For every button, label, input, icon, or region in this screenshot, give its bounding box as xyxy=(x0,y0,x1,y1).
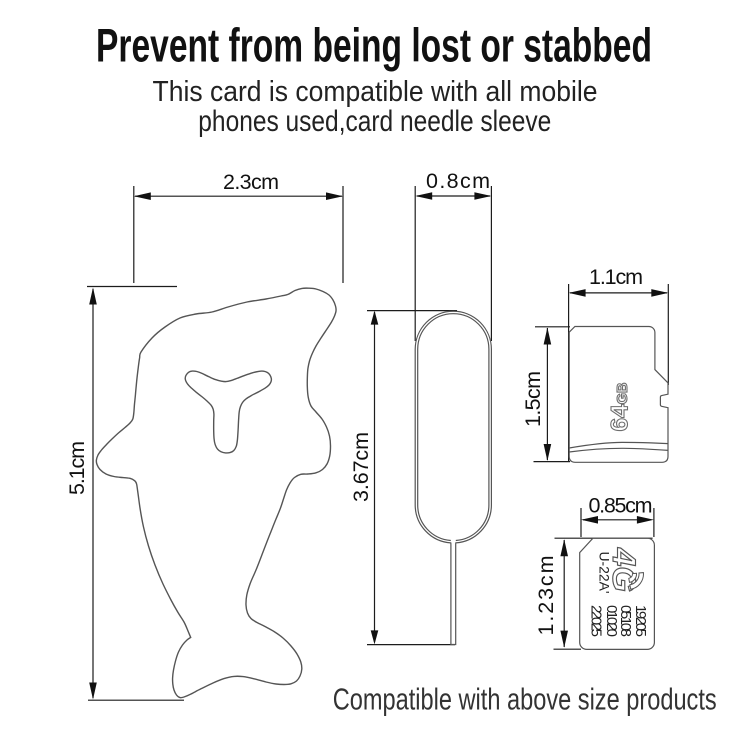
svg-text:0.85cm: 0.85cm xyxy=(589,494,653,518)
svg-text:Compatible with above size pro: Compatible with above size products xyxy=(333,681,717,716)
svg-text:1.5cm: 1.5cm xyxy=(521,371,545,427)
svg-text:22025: 22025 xyxy=(587,605,604,637)
svg-text:5.1cm: 5.1cm xyxy=(65,441,89,495)
svg-text:2.3cm: 2.3cm xyxy=(223,170,279,194)
svg-text:0.8cm: 0.8cm xyxy=(426,169,490,193)
svg-text:U-22A': U-22A' xyxy=(597,552,613,594)
svg-text:Prevent from being lost or sta: Prevent from being lost or stabbed xyxy=(96,19,652,72)
svg-text:01020: 01020 xyxy=(603,605,620,637)
svg-text:phones used,card needle sleeve: phones used,card needle sleeve xyxy=(198,105,551,138)
svg-text:This card is compatible with a: This card is compatible with all mobile xyxy=(153,76,598,108)
svg-text:1.1cm: 1.1cm xyxy=(589,265,643,289)
svg-text:1.23cm: 1.23cm xyxy=(534,556,558,636)
svg-text:64GB: 64GB xyxy=(607,382,634,431)
svg-text:3.67cm: 3.67cm xyxy=(349,432,373,502)
